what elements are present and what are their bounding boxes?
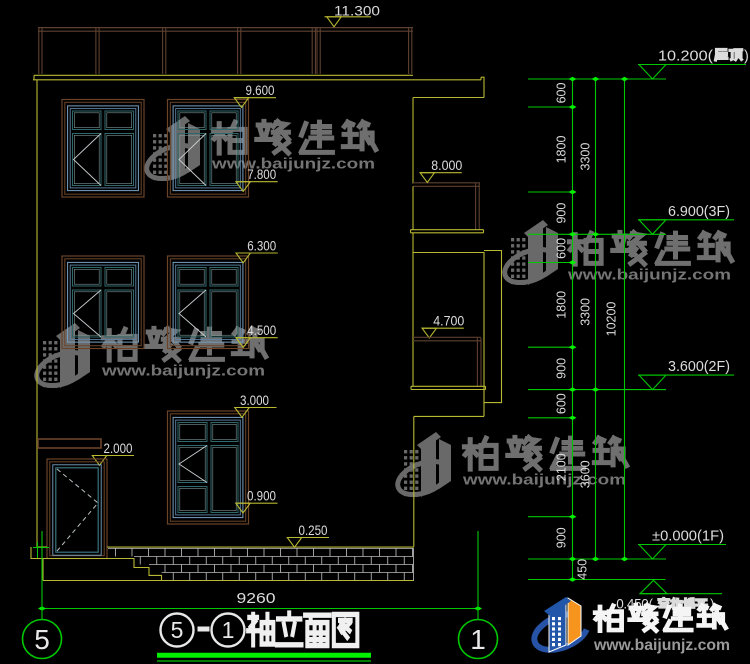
svg-text:7.800: 7.800 <box>247 167 276 182</box>
svg-text:600: 600 <box>555 83 569 104</box>
svg-text:600: 600 <box>555 393 569 414</box>
svg-text:5: 5 <box>171 617 184 643</box>
svg-text:450: 450 <box>576 559 590 580</box>
svg-text:11.300: 11.300 <box>334 3 380 18</box>
svg-text:600: 600 <box>555 238 569 259</box>
svg-text:1800: 1800 <box>555 291 569 319</box>
svg-text:3.000: 3.000 <box>240 393 269 408</box>
svg-text:3600: 3600 <box>579 460 593 488</box>
svg-text:6.300: 6.300 <box>247 239 276 254</box>
svg-text:): ) <box>744 49 749 65</box>
svg-text:4.700: 4.700 <box>433 314 464 329</box>
svg-text:3.600(2F): 3.600(2F) <box>668 359 730 375</box>
svg-text:4.500: 4.500 <box>247 323 276 338</box>
svg-text:1800: 1800 <box>555 136 569 164</box>
svg-text:6.900(3F): 6.900(3F) <box>668 204 730 220</box>
svg-text:2100: 2100 <box>555 453 569 481</box>
svg-text:10200: 10200 <box>605 302 619 337</box>
svg-text:www.baijunjz.com: www.baijunjz.com <box>567 267 731 284</box>
svg-text:8.000: 8.000 <box>431 158 462 173</box>
svg-text:9.600: 9.600 <box>246 83 275 98</box>
svg-text:0.900: 0.900 <box>247 489 276 504</box>
svg-text:900: 900 <box>555 527 569 548</box>
svg-text:900: 900 <box>555 203 569 224</box>
svg-text:3300: 3300 <box>579 143 593 171</box>
svg-text:1: 1 <box>470 624 486 655</box>
svg-text:900: 900 <box>555 358 569 379</box>
svg-text:2.000: 2.000 <box>104 441 133 456</box>
svg-text:9260: 9260 <box>237 590 276 607</box>
svg-text:www.baijunjz.com: www.baijunjz.com <box>593 637 730 654</box>
svg-text:www.baijunjz.com: www.baijunjz.com <box>462 472 626 489</box>
svg-text:±0.000(1F): ±0.000(1F) <box>652 529 724 545</box>
svg-text:5: 5 <box>34 624 50 655</box>
svg-text:1: 1 <box>222 617 235 643</box>
svg-text:3300: 3300 <box>579 298 593 326</box>
svg-text:10.200(: 10.200( <box>658 49 713 65</box>
svg-text:www.baijunjz.com: www.baijunjz.com <box>101 363 265 380</box>
svg-text:0.250: 0.250 <box>299 523 328 538</box>
svg-text:www.baijunjz.com: www.baijunjz.com <box>211 156 375 173</box>
